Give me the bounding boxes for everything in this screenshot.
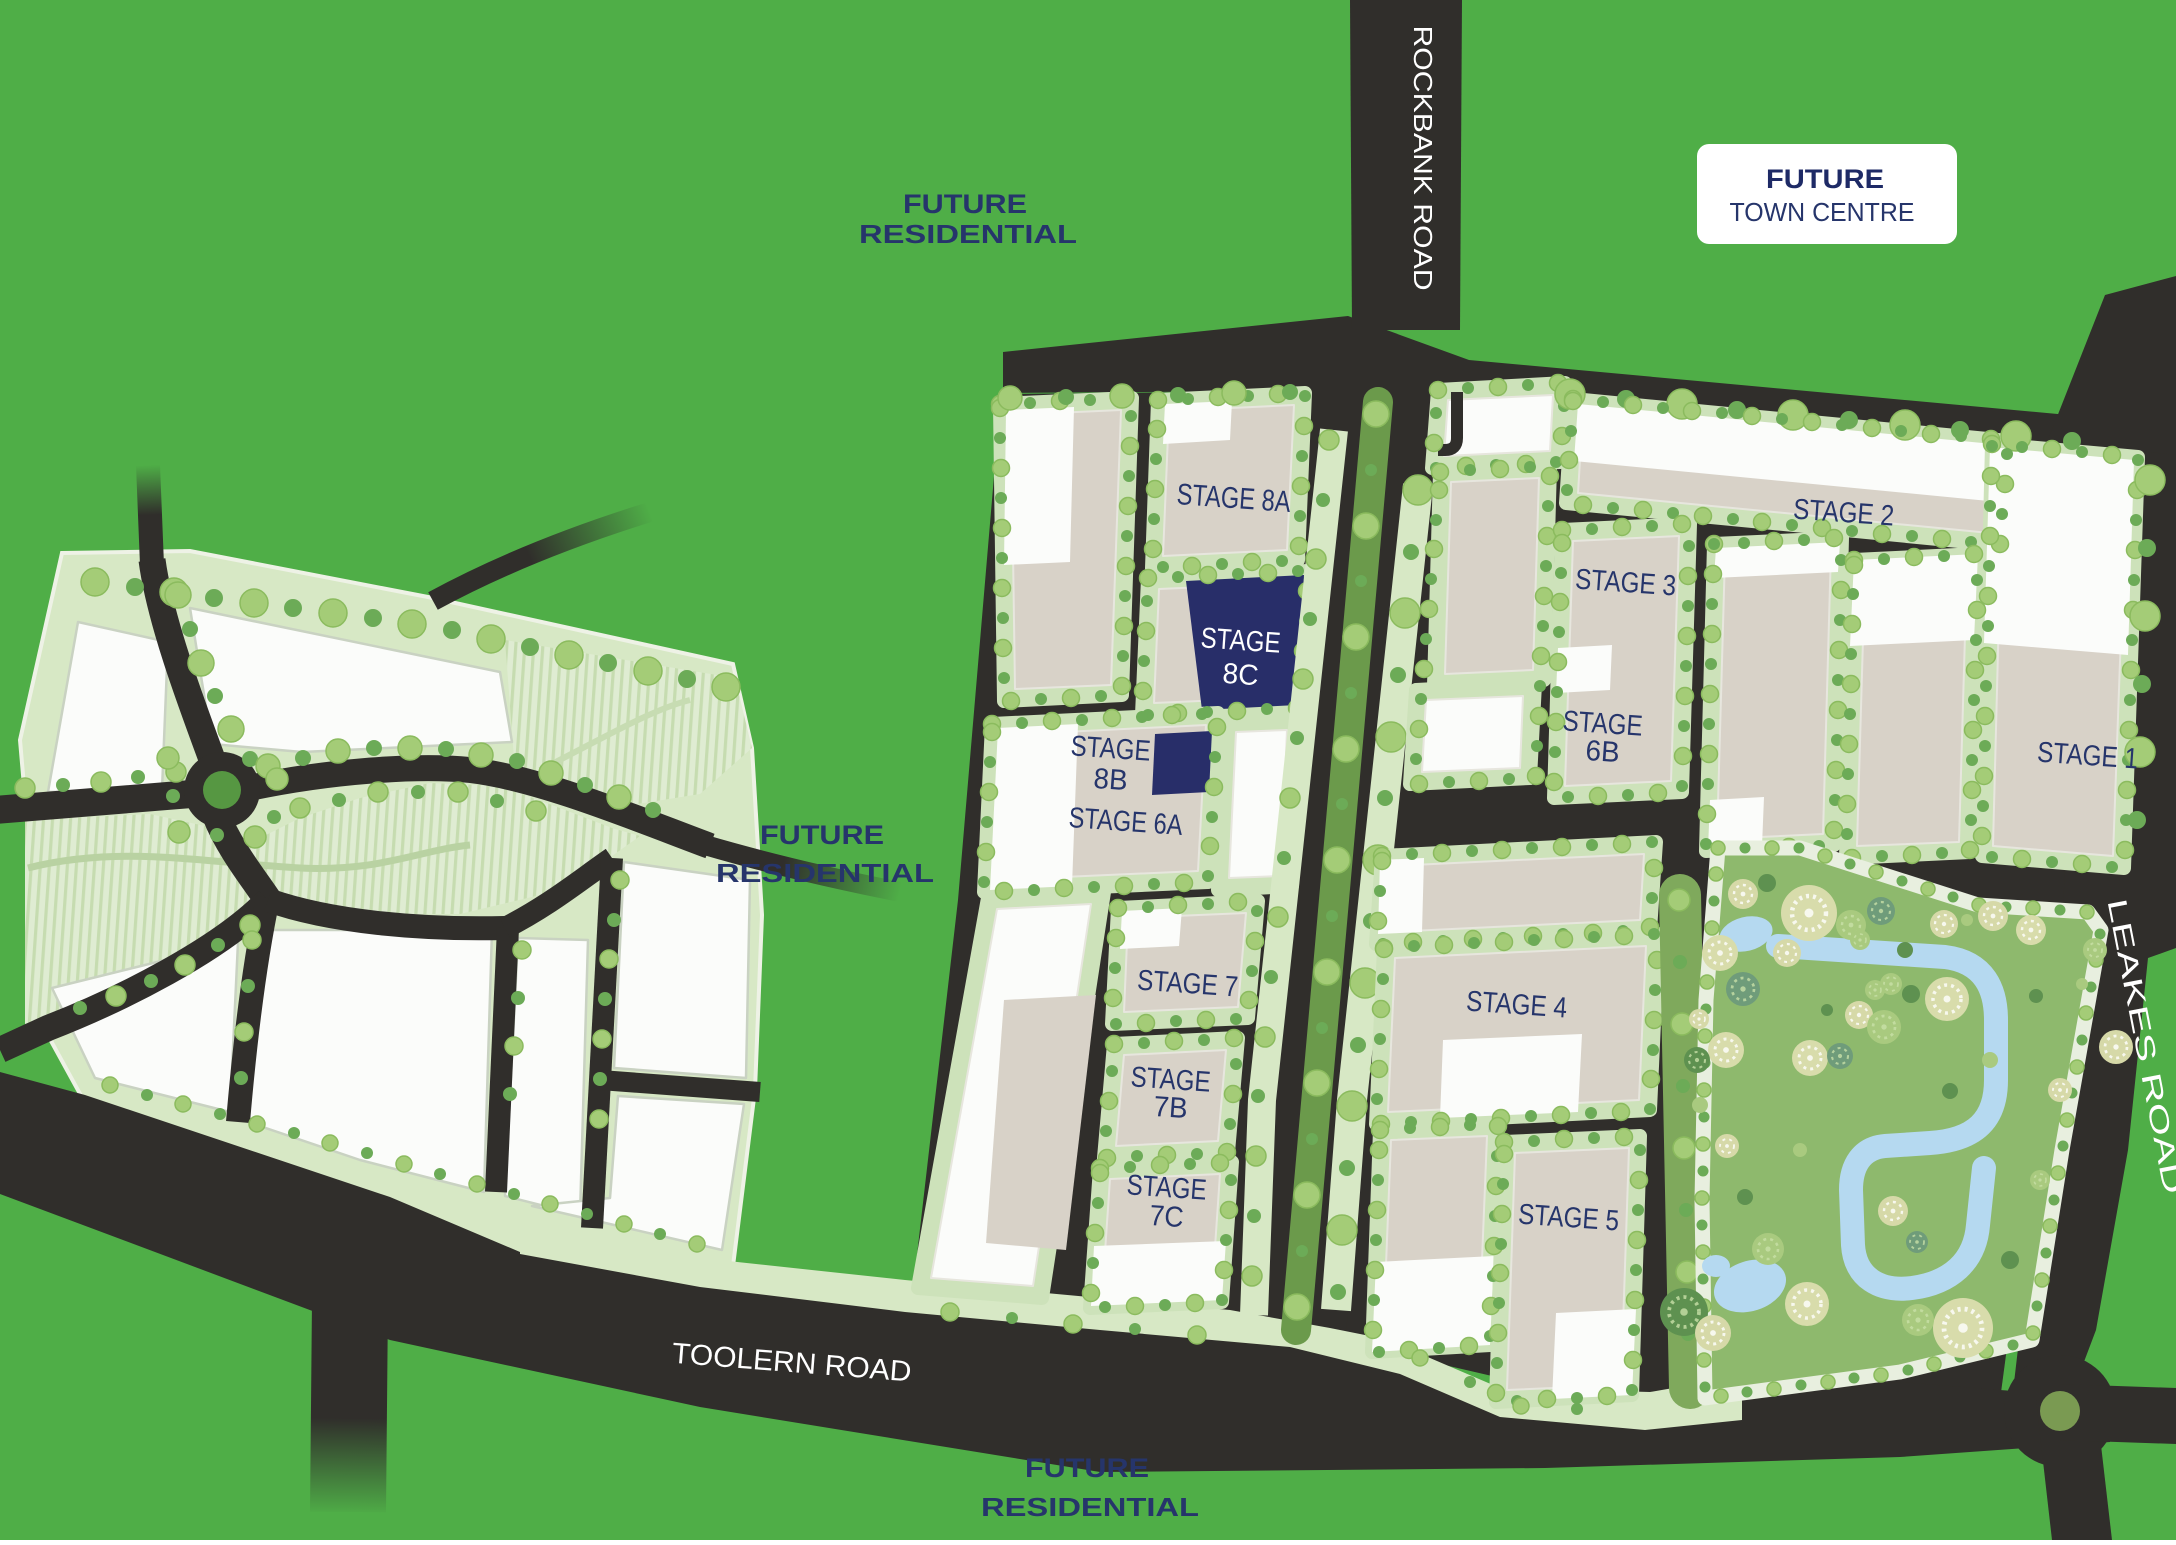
svg-text:RESIDENTIAL: RESIDENTIAL — [981, 1492, 1199, 1522]
svg-text:RESIDENTIAL: RESIDENTIAL — [859, 219, 1077, 249]
svg-text:ROCKBANK ROAD: ROCKBANK ROAD — [1408, 26, 1438, 291]
svg-text:STAGE: STAGE — [1200, 622, 1282, 660]
svg-text:RESIDENTIAL: RESIDENTIAL — [716, 858, 934, 888]
svg-text:FUTURE: FUTURE — [903, 189, 1027, 219]
svg-text:7C: 7C — [1149, 1200, 1185, 1234]
svg-text:FUTURE: FUTURE — [760, 820, 884, 850]
svg-text:FUTURE: FUTURE — [1025, 1453, 1149, 1483]
svg-text:8B: 8B — [1093, 763, 1129, 797]
svg-text:7B: 7B — [1153, 1091, 1189, 1125]
svg-text:8C: 8C — [1222, 658, 1260, 692]
svg-text:6B: 6B — [1585, 735, 1621, 769]
svg-text:STAGE: STAGE — [1070, 730, 1152, 768]
svg-text:TOWN CENTRE: TOWN CENTRE — [1730, 197, 1915, 227]
svg-text:FUTURE: FUTURE — [1766, 164, 1884, 194]
